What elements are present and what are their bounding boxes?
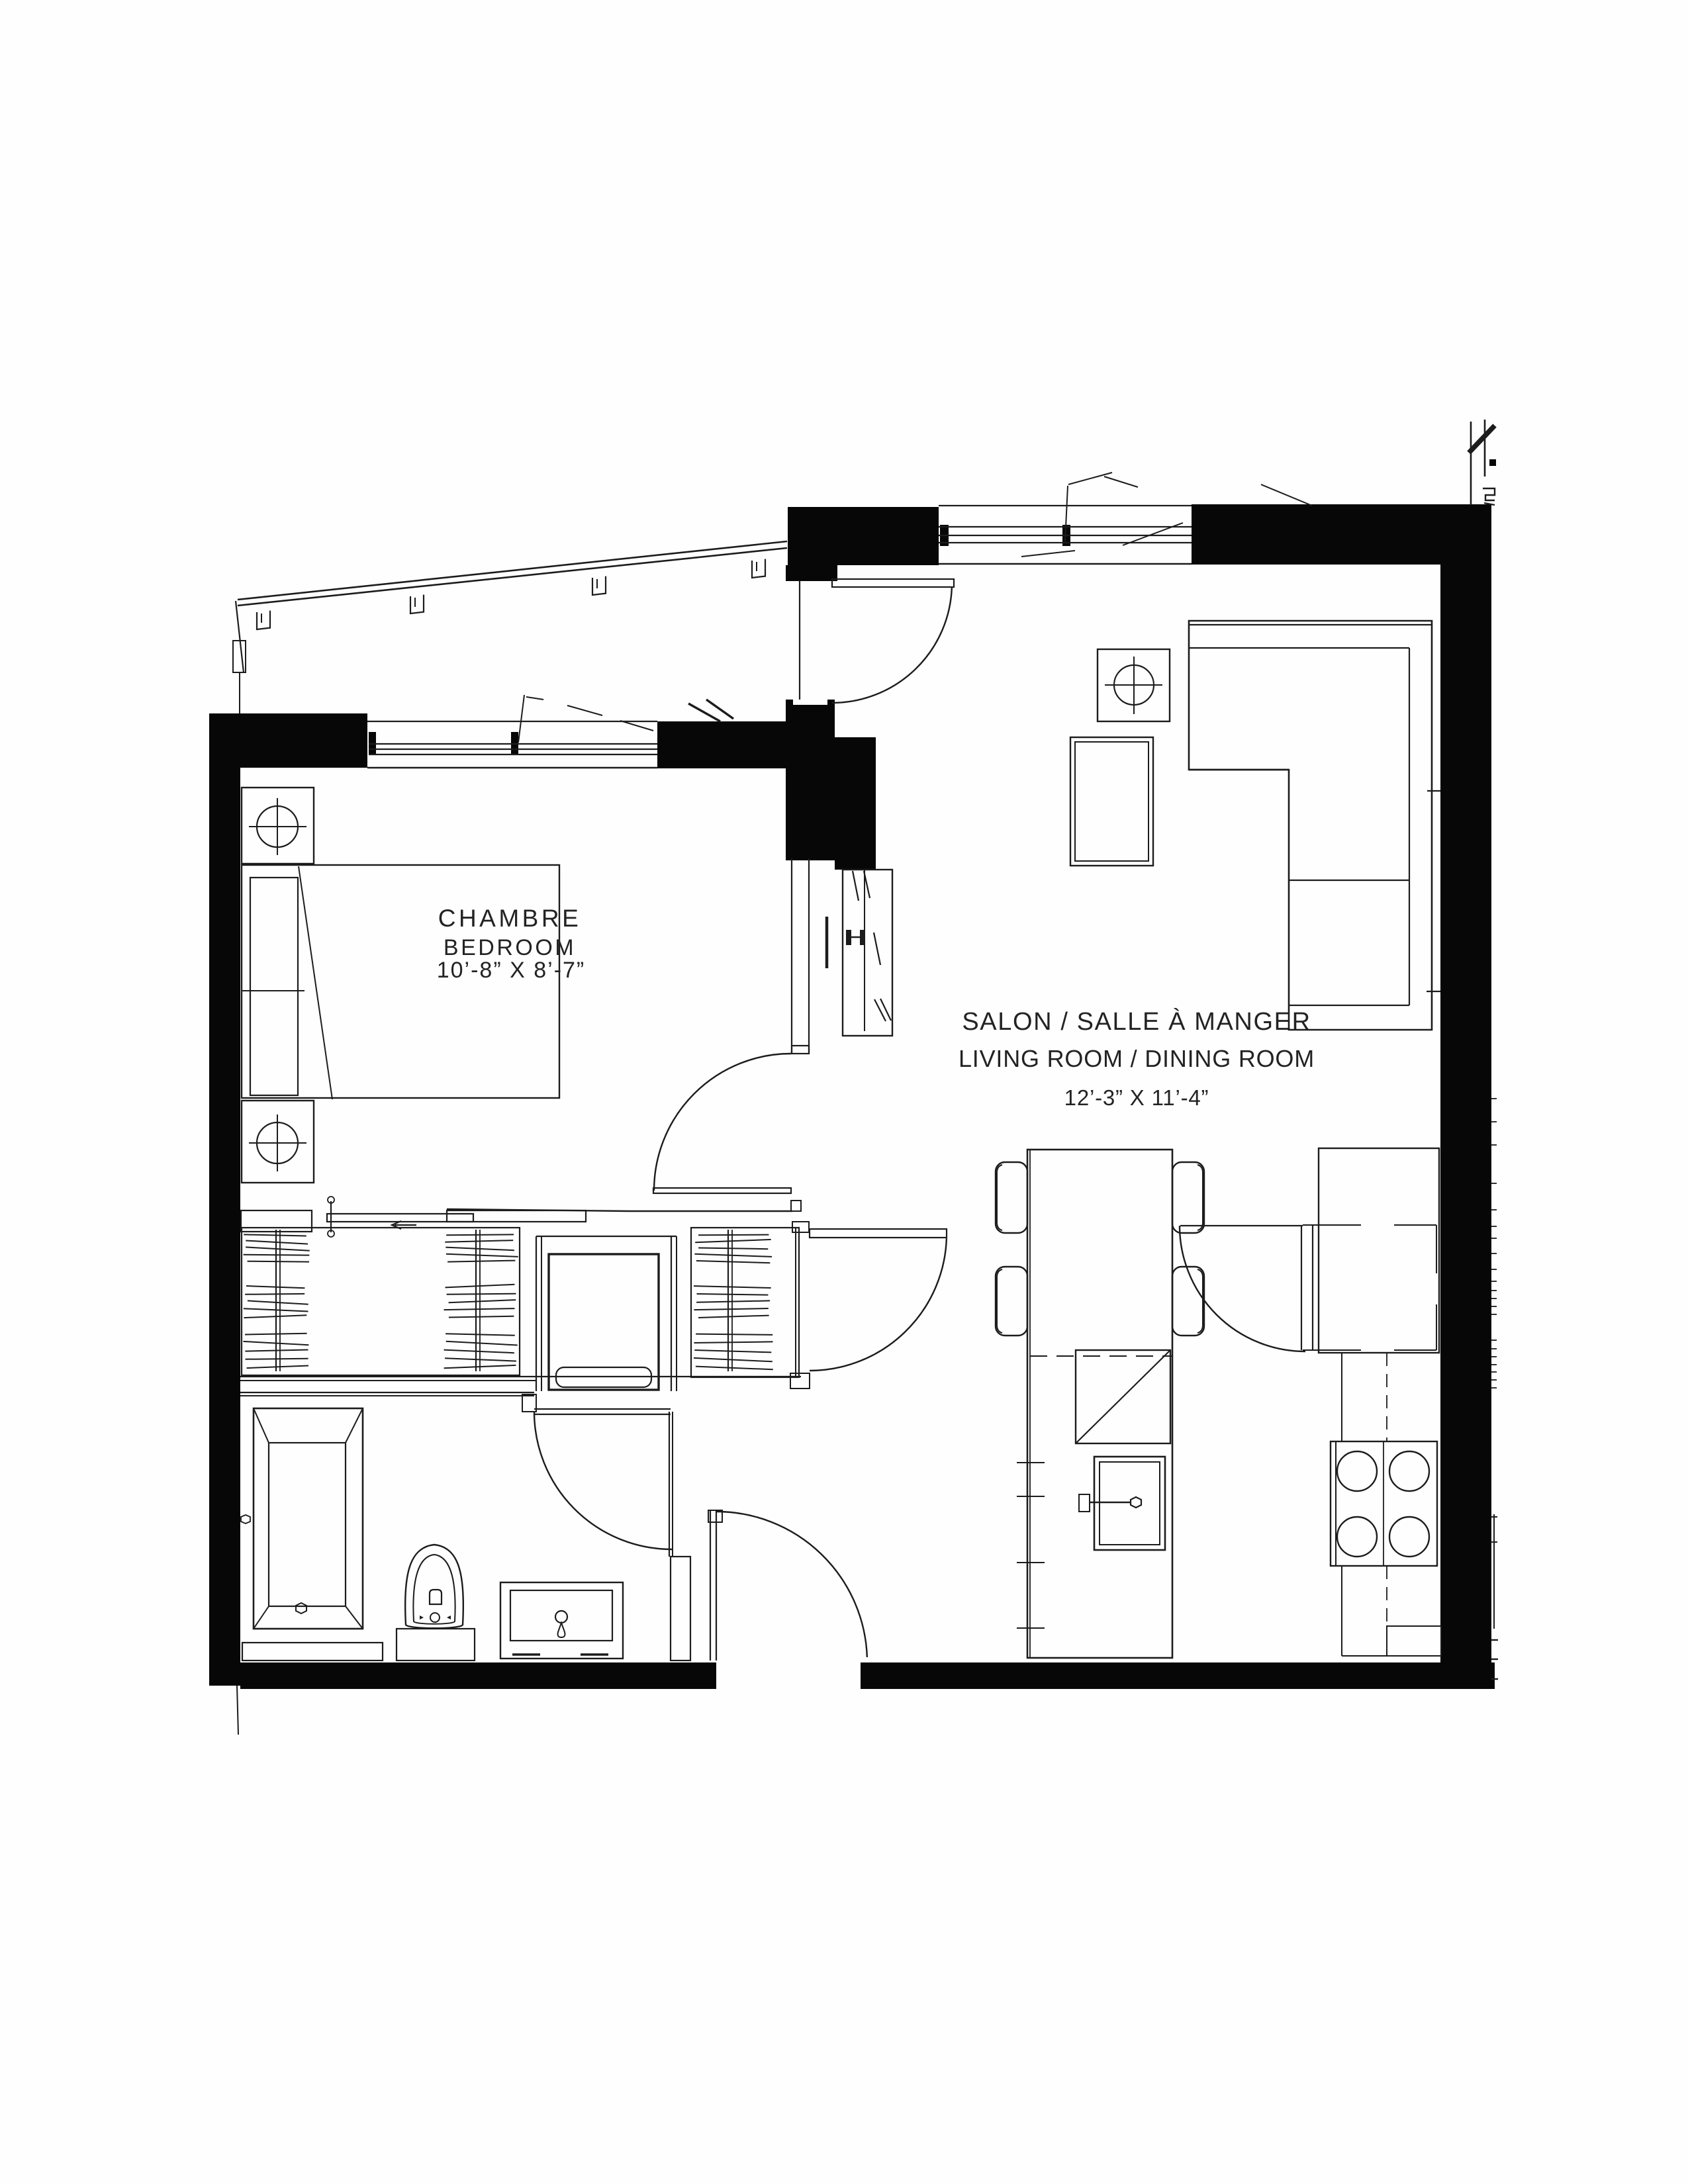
svg-text:CHAMBRE: CHAMBRE <box>438 905 582 932</box>
svg-text:BEDROOM: BEDROOM <box>444 935 576 960</box>
svg-text:SALON / SALLE À MANGER: SALON / SALLE À MANGER <box>962 1007 1311 1036</box>
svg-text:10’-8” X 8’-7”: 10’-8” X 8’-7” <box>437 958 586 983</box>
svg-text:12’-3” X 11’-4”: 12’-3” X 11’-4” <box>1064 1085 1209 1110</box>
svg-text:LIVING ROOM / DINING ROOM: LIVING ROOM / DINING ROOM <box>959 1045 1315 1072</box>
